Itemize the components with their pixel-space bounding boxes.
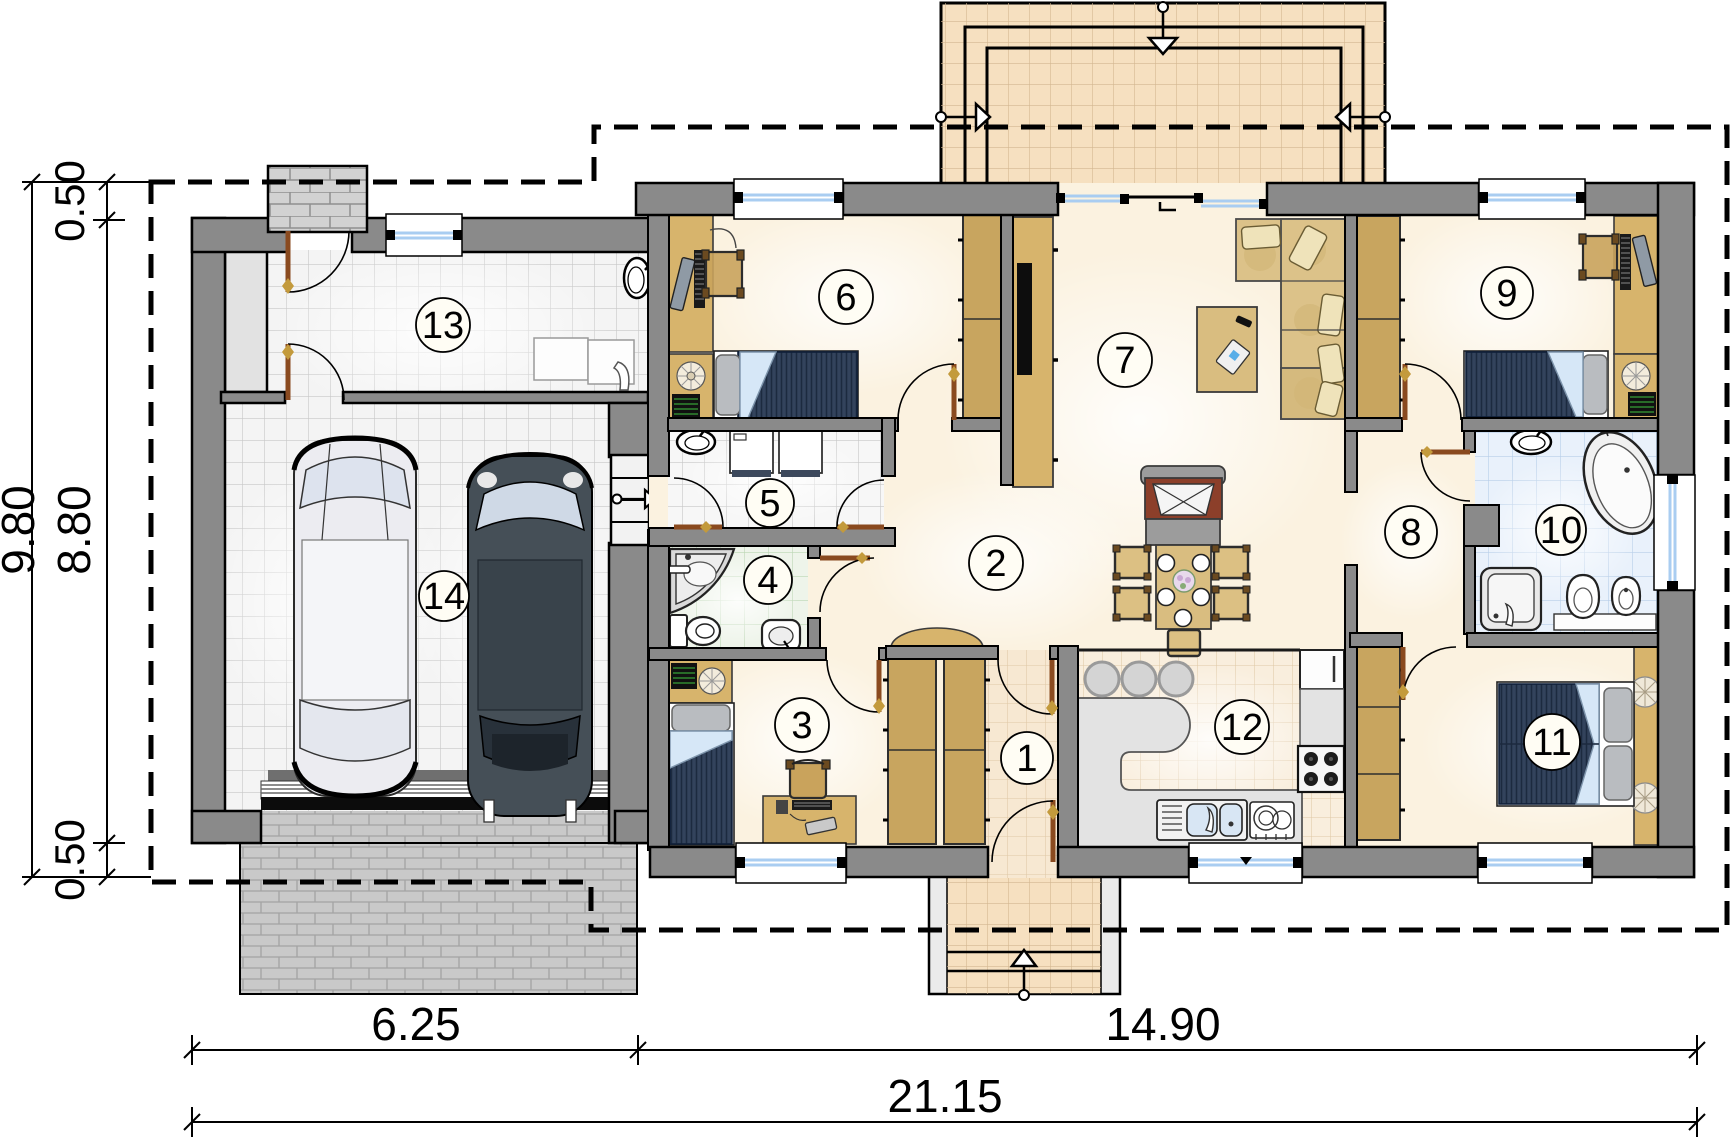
svg-text:7: 7 xyxy=(1114,340,1135,382)
svg-text:0.50: 0.50 xyxy=(46,160,93,242)
svg-text:13: 13 xyxy=(422,305,464,347)
svg-text:21.15: 21.15 xyxy=(887,1070,1002,1122)
svg-text:3: 3 xyxy=(791,705,812,747)
svg-text:14: 14 xyxy=(423,576,465,618)
svg-text:6: 6 xyxy=(835,277,856,319)
svg-text:11: 11 xyxy=(1532,722,1571,764)
svg-text:2: 2 xyxy=(985,543,1006,585)
svg-text:9.80: 9.80 xyxy=(0,485,44,575)
svg-text:14.90: 14.90 xyxy=(1105,998,1220,1050)
svg-text:0.50: 0.50 xyxy=(46,819,93,901)
svg-text:8.80: 8.80 xyxy=(48,485,100,575)
svg-text:1: 1 xyxy=(1016,738,1037,780)
svg-text:9: 9 xyxy=(1496,273,1517,315)
svg-text:4: 4 xyxy=(757,560,778,602)
svg-text:5: 5 xyxy=(759,483,780,525)
svg-text:6.25: 6.25 xyxy=(371,998,461,1050)
svg-text:8: 8 xyxy=(1400,512,1421,554)
svg-text:12: 12 xyxy=(1221,707,1263,749)
svg-text:10: 10 xyxy=(1540,510,1582,552)
